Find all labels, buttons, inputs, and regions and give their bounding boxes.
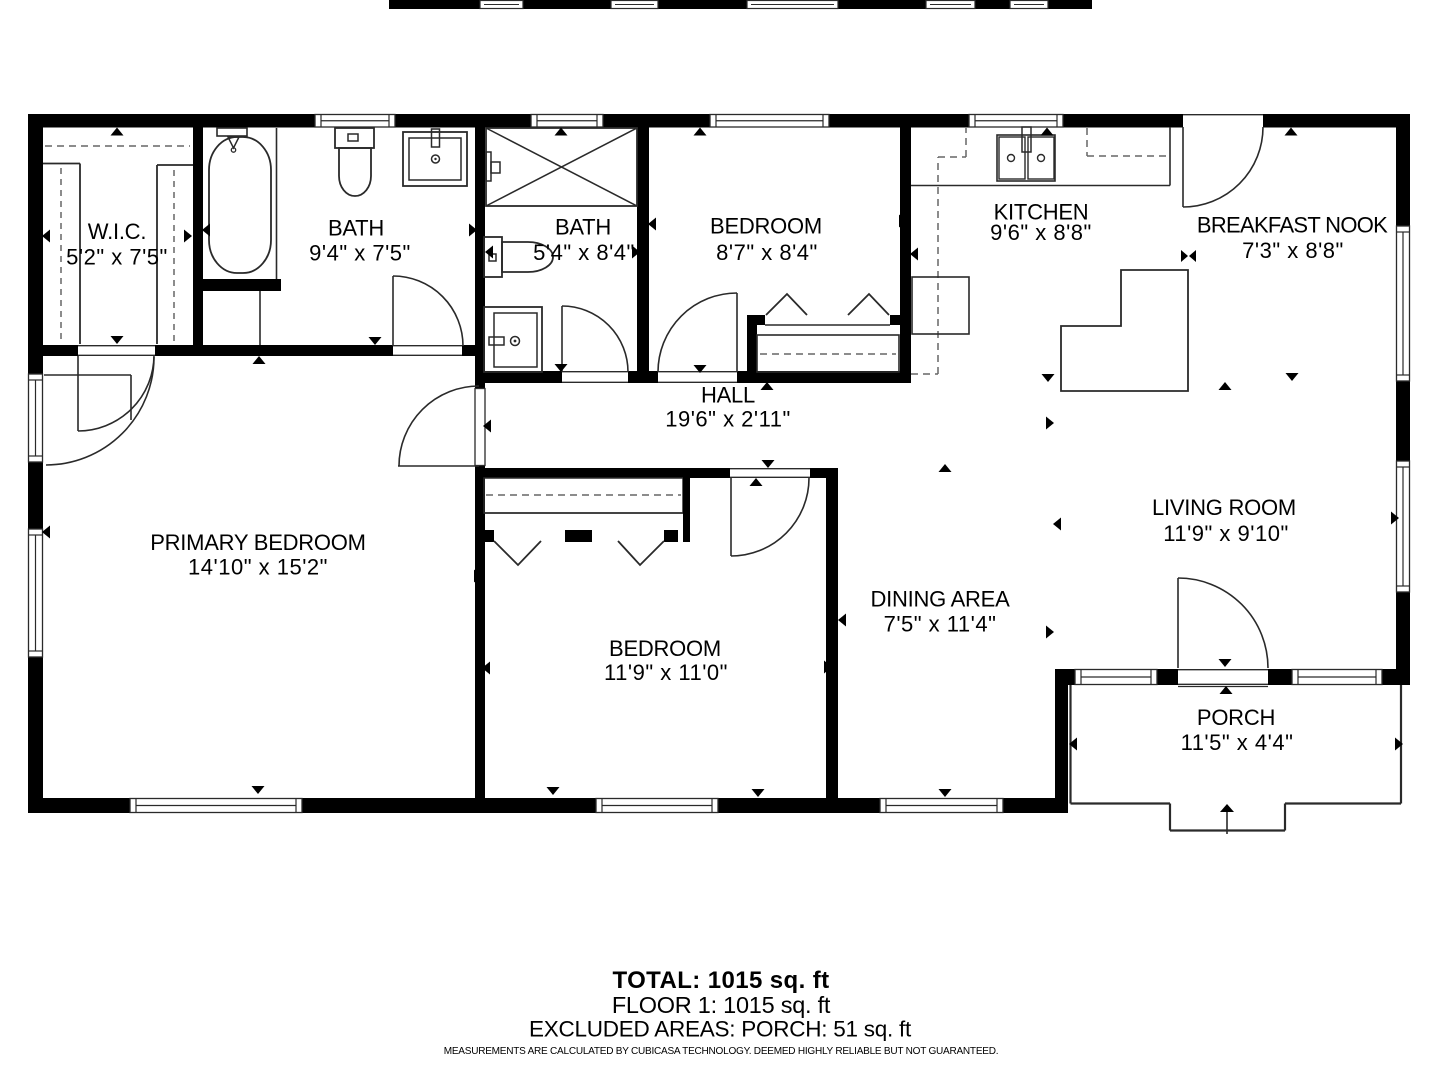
svg-text:8'7" x 8'4": 8'7" x 8'4": [716, 240, 818, 265]
svg-text:MEASUREMENTS ARE CALCULATED BY: MEASUREMENTS ARE CALCULATED BY CUBICASA …: [444, 1046, 999, 1057]
svg-text:EXCLUDED AREAS: PORCH: 51 sq.: EXCLUDED AREAS: PORCH: 51 sq. ft: [529, 1017, 912, 1042]
svg-text:5'4" x 8'4": 5'4" x 8'4": [533, 240, 635, 265]
svg-text:5'2" x 7'5": 5'2" x 7'5": [66, 245, 168, 270]
svg-text:BEDROOM: BEDROOM: [710, 214, 822, 239]
svg-text:BATH: BATH: [555, 215, 611, 240]
svg-text:LIVING ROOM: LIVING ROOM: [1152, 495, 1296, 520]
svg-text:W.I.C.: W.I.C.: [88, 219, 146, 244]
svg-text:7'3" x 8'8": 7'3" x 8'8": [1242, 238, 1344, 263]
svg-text:14'10" x 15'2": 14'10" x 15'2": [188, 555, 328, 580]
svg-text:BREAKFAST NOOK: BREAKFAST NOOK: [1197, 213, 1388, 238]
svg-text:11'5" x 4'4": 11'5" x 4'4": [1181, 730, 1294, 755]
svg-text:9'4" x 7'5": 9'4" x 7'5": [309, 241, 411, 266]
svg-text:11'9" x 11'0": 11'9" x 11'0": [604, 660, 728, 685]
svg-text:BATH: BATH: [328, 216, 384, 241]
svg-text:BEDROOM: BEDROOM: [609, 636, 721, 661]
svg-text:HALL: HALL: [701, 383, 755, 408]
svg-text:FLOOR 1: 1015 sq. ft: FLOOR 1: 1015 sq. ft: [612, 992, 831, 1018]
svg-text:TOTAL: 1015 sq. ft: TOTAL: 1015 sq. ft: [612, 967, 829, 994]
svg-text:PORCH: PORCH: [1197, 705, 1275, 730]
svg-text:7'5" x 11'4": 7'5" x 11'4": [884, 612, 997, 637]
svg-text:PRIMARY BEDROOM: PRIMARY BEDROOM: [150, 530, 365, 555]
svg-text:DINING AREA: DINING AREA: [870, 587, 1010, 612]
svg-text:9'6" x 8'8": 9'6" x 8'8": [990, 220, 1092, 245]
svg-text:19'6" x 2'11": 19'6" x 2'11": [665, 407, 791, 432]
svg-text:11'9" x 9'10": 11'9" x 9'10": [1163, 521, 1289, 546]
